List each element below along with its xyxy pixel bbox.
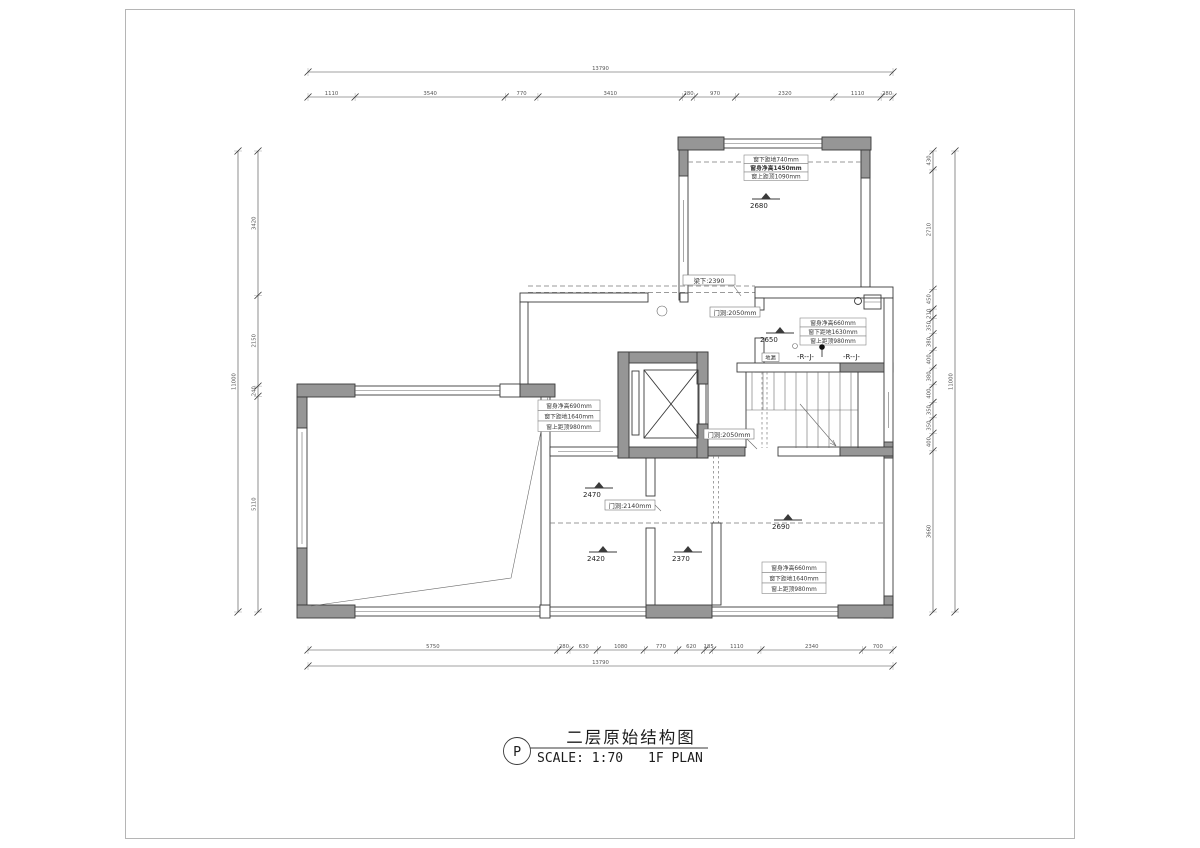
leader-text: 门洞:2050mm	[713, 308, 756, 317]
pipe-label: -R--J-	[843, 353, 860, 361]
beam-height-value: 2650	[760, 336, 778, 344]
annotation-line: 窗下距地1630mm	[808, 328, 858, 336]
window-annotation-box-bathroom: 窗身净高660mm 窗下距地1630mm 窗上距顶980mm	[793, 318, 867, 349]
pipe-riser-labels: -R--J- -R--J-	[797, 344, 860, 361]
leader-line	[747, 439, 757, 449]
dim-label: 400	[927, 354, 933, 365]
right-wall	[884, 298, 893, 618]
drain-label: 地漏	[762, 353, 779, 362]
elevator	[618, 352, 708, 458]
annotation-line: 窗身净高660mm	[771, 564, 817, 572]
beam-height-label-2680: 2680	[750, 193, 780, 210]
dim-label: 3420	[252, 216, 258, 230]
dim-label: 2340	[805, 644, 819, 650]
dim-label: 400	[927, 436, 933, 447]
plan-label: 1F PLAN	[648, 751, 703, 766]
dim-label: 380	[927, 336, 933, 347]
drain-text: 地漏	[765, 354, 775, 362]
leader-line	[733, 285, 741, 296]
dim-label: 280	[882, 91, 893, 97]
beam-height-value: 2420	[587, 555, 605, 563]
dim-label: 2320	[778, 91, 792, 97]
leader-label-door-b: 门洞:2050mm	[704, 429, 757, 449]
dim-label: 11000	[949, 372, 955, 389]
beam-height-value: 2370	[672, 555, 690, 563]
dim-label: 5110	[252, 497, 258, 511]
bottom-wall	[550, 605, 893, 618]
dim-label: 770	[517, 91, 528, 97]
slope-diagonal-line	[311, 397, 548, 606]
annotation-line: 窗上距顶980mm	[546, 423, 592, 431]
dim-label: 970	[710, 91, 721, 97]
dim-label: 13790	[592, 660, 609, 666]
door-swing-icon	[657, 306, 667, 316]
annotation-line: 窗身净高690mm	[546, 402, 592, 410]
drain-circle-icon	[855, 298, 862, 305]
annotation-line: 窗下距地1640mm	[544, 413, 594, 421]
drawing-sheet: 2680 2650 2470 2420 2370 2690 窗下距地740mm …	[0, 0, 1200, 848]
dim-label: 1080	[614, 644, 628, 650]
title-block: P 二层原始结构图 SCALE: 1:70 1F PLAN	[504, 728, 709, 766]
dim-label: 2150	[252, 333, 258, 347]
annotation-line: 窗下距地740mm	[753, 156, 799, 164]
beam-height-value: 2690	[772, 523, 790, 531]
dim-label: 5750	[426, 644, 440, 650]
window-annotation-box-bottomright: 窗身净高660mm 窗下距地1640mm 窗上距顶980mm	[762, 562, 826, 594]
dim-label: 3660	[927, 524, 933, 538]
leader-line	[655, 505, 661, 511]
leader-label-door-a: 门洞:2050mm	[710, 307, 760, 317]
leader-label-door-c: 门洞:2140mm	[605, 500, 661, 511]
dim-label: 13790	[592, 66, 609, 72]
dim-label: 3410	[604, 91, 618, 97]
beam-triangle-icon	[683, 546, 693, 552]
dim-label: 400	[927, 388, 933, 399]
dim-label: 630	[579, 644, 590, 650]
plan-walls	[297, 137, 893, 618]
leader-text: 梁下:2390	[694, 276, 725, 285]
dim-label: 620	[686, 644, 697, 650]
annotation-line: 窗下距地1640mm	[769, 575, 819, 583]
dim-label: 770	[656, 644, 667, 650]
annotation-line: 窗身净高1450mm	[750, 164, 801, 172]
beam-height-label-2370: 2370	[672, 546, 702, 563]
dim-label: 2710	[927, 222, 933, 236]
beam-height-label-2420: 2420	[587, 546, 617, 563]
beam-triangle-icon	[783, 514, 793, 520]
dim-label: 700	[873, 644, 884, 650]
drawing-title: 二层原始结构图	[566, 728, 696, 747]
dim-label: 11000	[232, 372, 238, 389]
annotation-line: 窗上距顶980mm	[771, 585, 817, 593]
beam-triangle-icon	[594, 482, 604, 488]
annotation-line: 窗身净高660mm	[810, 319, 856, 327]
beam-height-label-2690: 2690	[772, 514, 802, 531]
beam-triangle-icon	[775, 327, 785, 333]
window-annotation-box-topright: 窗下距地740mm 窗身净高1450mm 窗上距顶1090mm	[744, 155, 808, 181]
window-annotation-box-hall: 窗身净高690mm 窗下距地1640mm 窗上距顶980mm	[538, 400, 600, 432]
dim-label: 1110	[325, 91, 339, 97]
dim-label: 1110	[730, 644, 744, 650]
beam-height-value: 2680	[750, 202, 768, 210]
beam-triangle-icon	[598, 546, 608, 552]
beam-height-label-2650: 2650	[760, 327, 794, 344]
dim-label: 380	[927, 371, 933, 382]
pipe-label: -R--J-	[797, 353, 814, 361]
leader-text: 门洞:2140mm	[608, 501, 651, 510]
beam-height-label-2470: 2470	[583, 482, 613, 499]
dim-label: 240	[252, 386, 258, 397]
scale-label: SCALE: 1:70	[537, 751, 623, 766]
leader-dot-icon	[793, 344, 798, 349]
room-large-left	[297, 384, 555, 618]
annotation-line: 窗上距顶1090mm	[751, 173, 801, 181]
dim-label: 280	[559, 644, 570, 650]
dim-label: 350	[927, 404, 933, 415]
beam-height-value: 2470	[583, 491, 601, 499]
beam-triangle-icon	[761, 193, 771, 199]
dim-label: 1110	[851, 91, 865, 97]
stairs	[746, 372, 858, 448]
floor-plan-drawing: 2680 2650 2470 2420 2370 2690 窗下距地740mm …	[0, 0, 1200, 848]
annotation-line: 窗上距顶980mm	[810, 337, 856, 345]
leader-text: 门洞:2050mm	[707, 430, 750, 439]
rooms-middle	[550, 447, 893, 605]
dim-label: 210	[927, 308, 933, 319]
dim-label: 350	[927, 420, 933, 431]
dim-label: 280	[683, 91, 694, 97]
title-bubble-letter: P	[513, 745, 521, 760]
dim-label: 450	[927, 293, 933, 304]
dim-label: 185	[704, 644, 714, 650]
dim-label: 350	[927, 320, 933, 331]
pipe-riser-icon	[819, 344, 825, 350]
dim-label: 430	[927, 155, 933, 166]
dim-label: 3540	[423, 91, 437, 97]
